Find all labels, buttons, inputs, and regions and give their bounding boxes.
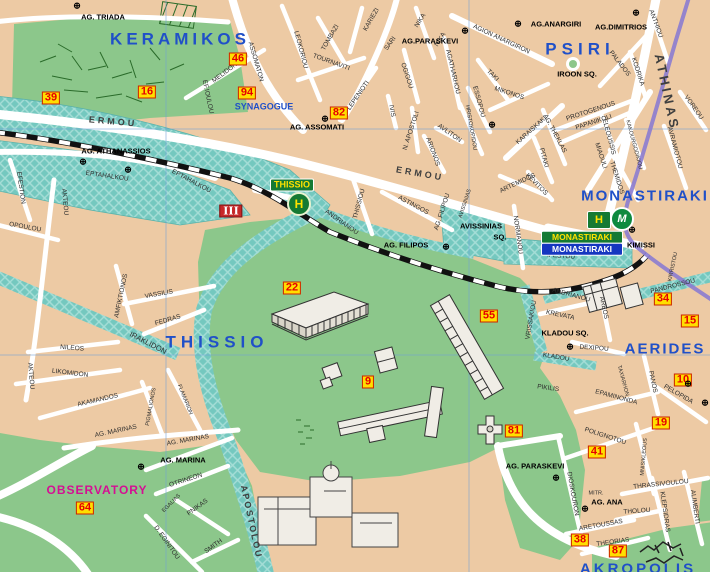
street-label-taki: TAKI	[485, 69, 499, 83]
street-label-kodrika: KODRIKA	[629, 57, 644, 87]
poi-label-ag-anargiri: AG.ANARGIRI	[531, 20, 581, 28]
street-label-agion-anargiron: AGION ANARGIRON	[472, 24, 531, 56]
street-label-n-apostoli: N. APOSTOLI	[403, 111, 422, 151]
street-label-fedras: FEDRAS	[154, 314, 181, 328]
street-label-pnikas: PNIKAS	[186, 498, 209, 517]
street-label-hristokopidou: HRISTOKOPIDOU	[463, 105, 476, 151]
street-label-apostolou: APOSTOLOU	[239, 484, 263, 559]
street-label-sari: SARI	[384, 36, 398, 52]
church-icon--: ⊕	[684, 380, 692, 389]
street-label-avliton: AVLITON	[436, 124, 462, 145]
thissio-station-label: THISSIO	[270, 179, 314, 192]
street-label-leokoriou: LEOKORIOU	[292, 30, 308, 69]
street-label-andrianou: ANDRIANOU	[551, 288, 590, 304]
street-label-otrineon: OTRINEON	[169, 473, 204, 490]
poi-label-ag-ana: AG. ANA	[591, 498, 622, 506]
street-label-efestion: EFESTION	[15, 171, 26, 204]
church-icon--: ⊕	[73, 2, 81, 11]
street-label-ermou: ERMOU	[395, 165, 444, 182]
street-label-dexipou: DEXIPOU	[579, 345, 609, 354]
labels-layer: KERAMIKOSPSIRITHISSIOMONASTIRAKIAERIDESA…	[0, 0, 710, 572]
poi-label-ag-filipos: AG. FILIPOS	[384, 241, 429, 249]
street-label-ag-marinas: AG. MARINAS	[166, 434, 209, 448]
sight-marker-iii: III	[219, 205, 242, 218]
church-icon--: ⊕	[137, 463, 145, 472]
sight-marker-16: 16	[138, 86, 156, 99]
street-label-kirristou: KIRRISTOU	[668, 252, 680, 282]
street-label-krevata: KREVATA	[545, 310, 575, 322]
poi-label-ag-dimitrios: AG.DIMITRIOS	[595, 23, 647, 31]
street-label-anthiou: ANTHIOU	[647, 9, 663, 39]
street-label-likomidon: LIKOMIDON	[51, 369, 88, 380]
street-label-essopou: ESSOPOU	[471, 86, 486, 119]
street-label-lepenioti: LEPENIOTI	[347, 80, 372, 112]
street-label-kariezi: KARIEZI	[363, 7, 381, 32]
street-label-amfiktionos: AMFIKTIONOS	[114, 273, 130, 318]
thissio-station-h-icon: H	[287, 192, 311, 216]
poi-label-kimissi: KIMISSI	[627, 241, 655, 249]
monastiraki-metro-icon: M	[610, 207, 634, 231]
street-label-akteou: AKTEOU	[26, 362, 35, 389]
street-label-astingos: ASTINGOS	[397, 195, 430, 217]
street-label-assomaton: ASSOMATON	[246, 41, 264, 82]
street-label-avissinias: AVISSINIAS	[459, 189, 474, 219]
street-label-egalias: EGALIAS	[162, 494, 183, 515]
church-icon--: ⊕	[552, 474, 560, 483]
sight-marker-39: 39	[42, 92, 60, 105]
church-icon--: ⊕	[124, 166, 132, 175]
street-label-athinas: ATHINAS	[653, 53, 682, 132]
sight-marker-82: 82	[330, 107, 348, 120]
street-label-opoulou: OPOULOU	[8, 222, 41, 234]
poi-label-observatory: OBSERVATORY	[46, 484, 147, 496]
street-label-vassilis: VASSILIS	[144, 289, 173, 300]
street-label-polignotou: POLIGNOTOU	[583, 427, 626, 447]
street-label-nileos: NILEOS	[60, 345, 84, 354]
street-label-akamandos: AKAMANDOS	[77, 393, 119, 409]
monastiraki-isap-label: MONASTIRAKI	[541, 231, 623, 244]
poi-label-ag-marina: AG. MARINA	[160, 456, 205, 464]
church-icon--: ⊕	[79, 158, 87, 167]
street-label-pikilis: PIKILIS	[537, 384, 560, 394]
street-label-mitr-: MITR.	[589, 491, 604, 497]
street-label-epaminonda: EPAMINONDA	[594, 389, 637, 406]
street-label-aretoussas: ARETOUSSAS	[579, 519, 624, 533]
street-label-vrissakiou: VRISSAKIOU	[525, 300, 538, 340]
poi-label-ag-paraskevi: AG. PARASKEVI	[506, 462, 565, 470]
district-label-keramikos: KERAMIKOS	[110, 31, 250, 48]
sight-marker-81: 81	[505, 425, 523, 438]
sight-marker-34: 34	[654, 293, 672, 306]
sight-marker-94: 94	[238, 87, 256, 100]
street-label-smith: SMITH	[204, 538, 224, 555]
street-label-eptahalkou: EPTAHALKOU	[85, 171, 129, 183]
church-icon--: ⊕	[514, 20, 522, 29]
church-icon--: ⊕	[442, 243, 450, 252]
sight-marker-41: 41	[588, 446, 606, 459]
street-label-ermou: ERMOU	[88, 115, 137, 128]
street-label-areos: AREOS	[597, 296, 608, 320]
street-label-miaouli: MIAOULI	[593, 142, 607, 169]
church-icon--: ⊕	[321, 115, 329, 124]
street-label-thrassivoulou: THRASSIVOULOU	[633, 479, 689, 491]
street-label-mnisikleous: MNISIKLEOUS	[641, 438, 650, 476]
street-label-avramiotou: AVRAMIOTOU	[665, 126, 682, 169]
street-label-taxiarhon: TAXIARHON	[615, 365, 629, 397]
street-label-kakourgodikiou: KAKOURGODIKIOU	[624, 120, 642, 170]
sight-marker-46: 46	[229, 53, 247, 66]
district-label-thissio: THISSIO	[165, 334, 268, 351]
street-label-ogigou: OGIGOU	[399, 62, 413, 89]
church-icon--: ⊕	[566, 343, 574, 352]
street-label-dioskouron: DIOSKOURON	[565, 472, 579, 517]
district-label-synagogue: SYNAGOGUE	[235, 103, 294, 112]
street-label-palados: PALADOS	[607, 50, 631, 78]
street-label-tholou: THOLOU	[623, 508, 650, 516]
church-icon--: ⊕	[581, 505, 589, 514]
street-label-agatharhou: AGATHARHOU	[444, 49, 461, 95]
street-label-akteou: AKTEOU	[60, 188, 69, 215]
street-label-ivis: IVIS	[387, 104, 396, 117]
district-label-akropolis: AKROPOLIS	[580, 562, 696, 572]
sight-marker-87: 87	[609, 545, 627, 558]
church-icon--: ⊕	[488, 121, 496, 130]
street-label-flamarion: FLAMARION	[175, 384, 192, 416]
poi-label-ag-triada: AG. TRIADA	[81, 13, 125, 21]
street-label-tournaviti: TOURNAVITI	[312, 53, 351, 72]
poi-label-kladou-sq-: KLADOU SQ.	[541, 329, 588, 337]
street-label-normanou: NORMANOU	[511, 215, 523, 254]
street-label-ef-ioulou: EF.IOULOU	[200, 80, 213, 115]
street-label-arionos: ARIONOS	[424, 137, 440, 167]
sight-marker-38: 38	[571, 534, 589, 547]
street-label-klepsidras: KLEPSIDRAS	[658, 491, 670, 532]
street-label-nika: NIKA	[414, 13, 428, 29]
street-label-iraklidon: IRAKLIDON	[128, 330, 167, 355]
sight-marker-15: 15	[681, 315, 699, 328]
sight-marker-64: 64	[76, 502, 94, 515]
district-label-aerides: AERIDES	[625, 342, 706, 357]
church-icon--: ⊕	[632, 9, 640, 18]
poi-label-sq-: SQ.	[494, 233, 507, 241]
athens-city-map: KERAMIKOSPSIRITHISSIOMONASTIRAKIAERIDESA…	[0, 0, 710, 572]
street-label-mikonos: MIKONOS	[493, 86, 524, 102]
street-label-ag-marinas: AG. MARINAS	[94, 424, 137, 439]
street-label-eptahalkou: EPTAHALKOU	[170, 169, 211, 195]
monastiraki-metro-label: MONASTIRAKI	[541, 243, 623, 256]
street-label-alimberti: ALIMBERTI	[688, 490, 699, 525]
street-label-panos: PANOS	[647, 370, 658, 393]
sight-marker-19: 19	[652, 417, 670, 430]
street-label-pitaki: PITAKI	[537, 147, 548, 168]
church-icon--: ⊕	[701, 399, 709, 408]
street-label-tombazi: TOMBAZI	[321, 24, 341, 52]
poi-label-avissinias: AVISSINIAS	[460, 222, 502, 230]
street-label-thissiou: THISSIOU	[353, 188, 367, 219]
poi-label-ag-paraskevi: AG.PARASKEVI	[402, 37, 459, 45]
street-label-kladou: KLADOU	[542, 353, 569, 364]
church-icon--: ⊕	[461, 27, 469, 36]
street-label-d-eginitou: D. EGINITOU	[152, 525, 180, 561]
street-label-pigmalionos: PIGMALIONOS	[146, 388, 158, 427]
poi-label-ag-assomati: AG. ASSOMATI	[290, 123, 344, 131]
poi-label-ag-athanassios: AG. ATHANASSIOS	[81, 147, 150, 155]
sight-marker-9: 9	[362, 376, 374, 389]
sight-marker-22: 22	[283, 282, 301, 295]
district-label-monastiraki: MONASTIRAKI	[581, 189, 709, 204]
monastiraki-station-h-icon: H	[587, 211, 611, 229]
street-label-voreou: VOREOU	[682, 95, 703, 122]
sight-marker-55: 55	[480, 310, 498, 323]
district-label-psiri: PSIRI	[545, 41, 614, 58]
street-label-ag-filipou: AG. FILIPOU	[434, 193, 452, 231]
poi-label-iroon-sq-: IROON SQ.	[557, 70, 597, 78]
